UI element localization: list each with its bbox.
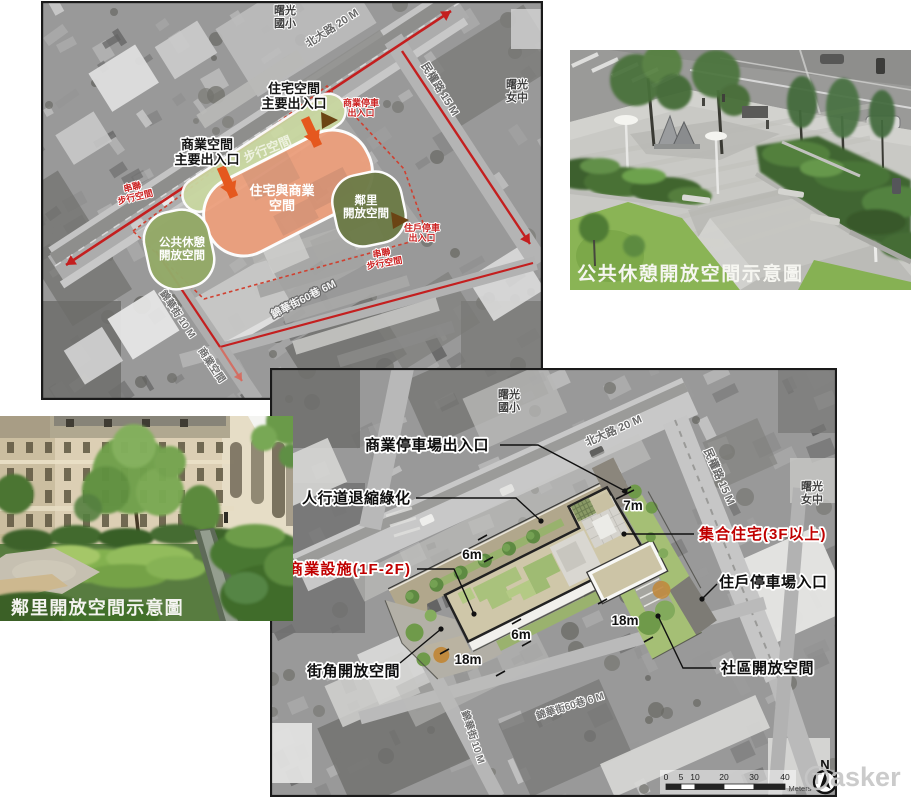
svg-text:40: 40	[780, 772, 790, 782]
svg-text:商業停車場出入口: 商業停車場出入口	[365, 436, 489, 454]
svg-text:6m: 6m	[511, 627, 531, 642]
svg-text:鄰里開放空間示意圖: 鄰里開放空間示意圖	[11, 597, 184, 618]
svg-text:女中: 女中	[801, 492, 823, 506]
svg-text:出入口: 出入口	[347, 107, 374, 118]
svg-text:住戶停車: 住戶停車	[404, 222, 440, 233]
svg-text:人行道退縮綠化: 人行道退縮綠化	[302, 489, 411, 507]
svg-text:10: 10	[690, 772, 700, 782]
svg-text:女中: 女中	[506, 90, 528, 104]
svg-text:20: 20	[719, 772, 729, 782]
svg-text:主要出入口: 主要出入口	[261, 96, 326, 111]
svg-text:曙光: 曙光	[506, 77, 528, 91]
svg-text:開放空間: 開放空間	[343, 206, 389, 220]
svg-text:住戶停車場入口: 住戶停車場入口	[719, 573, 828, 591]
svg-text:國小: 國小	[498, 400, 520, 414]
svg-text:曙光: 曙光	[498, 387, 520, 401]
svg-text:集合住宅(3F以上): 集合住宅(3F以上)	[698, 525, 827, 543]
svg-text:公共休憩開放空間示意圖: 公共休憩開放空間示意圖	[577, 262, 804, 285]
svg-text:T: T	[812, 771, 822, 788]
svg-text:商業停車: 商業停車	[343, 97, 379, 108]
svg-text:曙光: 曙光	[274, 3, 296, 17]
svg-text:曙光: 曙光	[801, 479, 823, 493]
svg-text:7m: 7m	[623, 498, 643, 513]
svg-text:主要出入口: 主要出入口	[174, 152, 239, 167]
svg-text:街角開放空間: 街角開放空間	[306, 662, 400, 680]
svg-text:出入口: 出入口	[408, 232, 435, 243]
svg-text:18m: 18m	[611, 613, 638, 628]
svg-text:18m: 18m	[454, 652, 481, 667]
svg-text:住宅與商業: 住宅與商業	[249, 183, 315, 198]
svg-text:開放空間: 開放空間	[159, 248, 205, 262]
svg-text:asker: asker	[830, 762, 901, 792]
svg-text:6m: 6m	[462, 547, 482, 562]
svg-text:0: 0	[664, 772, 669, 782]
svg-text:社區開放空間: 社區開放空間	[720, 659, 814, 677]
svg-text:國小: 國小	[274, 16, 296, 30]
svg-text:公共休憩: 公共休憩	[159, 235, 205, 249]
svg-text:商業空間: 商業空間	[181, 137, 233, 152]
svg-text:鄰里: 鄰里	[355, 193, 378, 207]
svg-text:空間: 空間	[269, 198, 295, 213]
svg-text:商業設施(1F-2F): 商業設施(1F-2F)	[288, 560, 411, 578]
svg-text:5: 5	[679, 772, 684, 782]
svg-text:30: 30	[749, 772, 759, 782]
svg-text:住宅空間: 住宅空間	[268, 81, 320, 96]
